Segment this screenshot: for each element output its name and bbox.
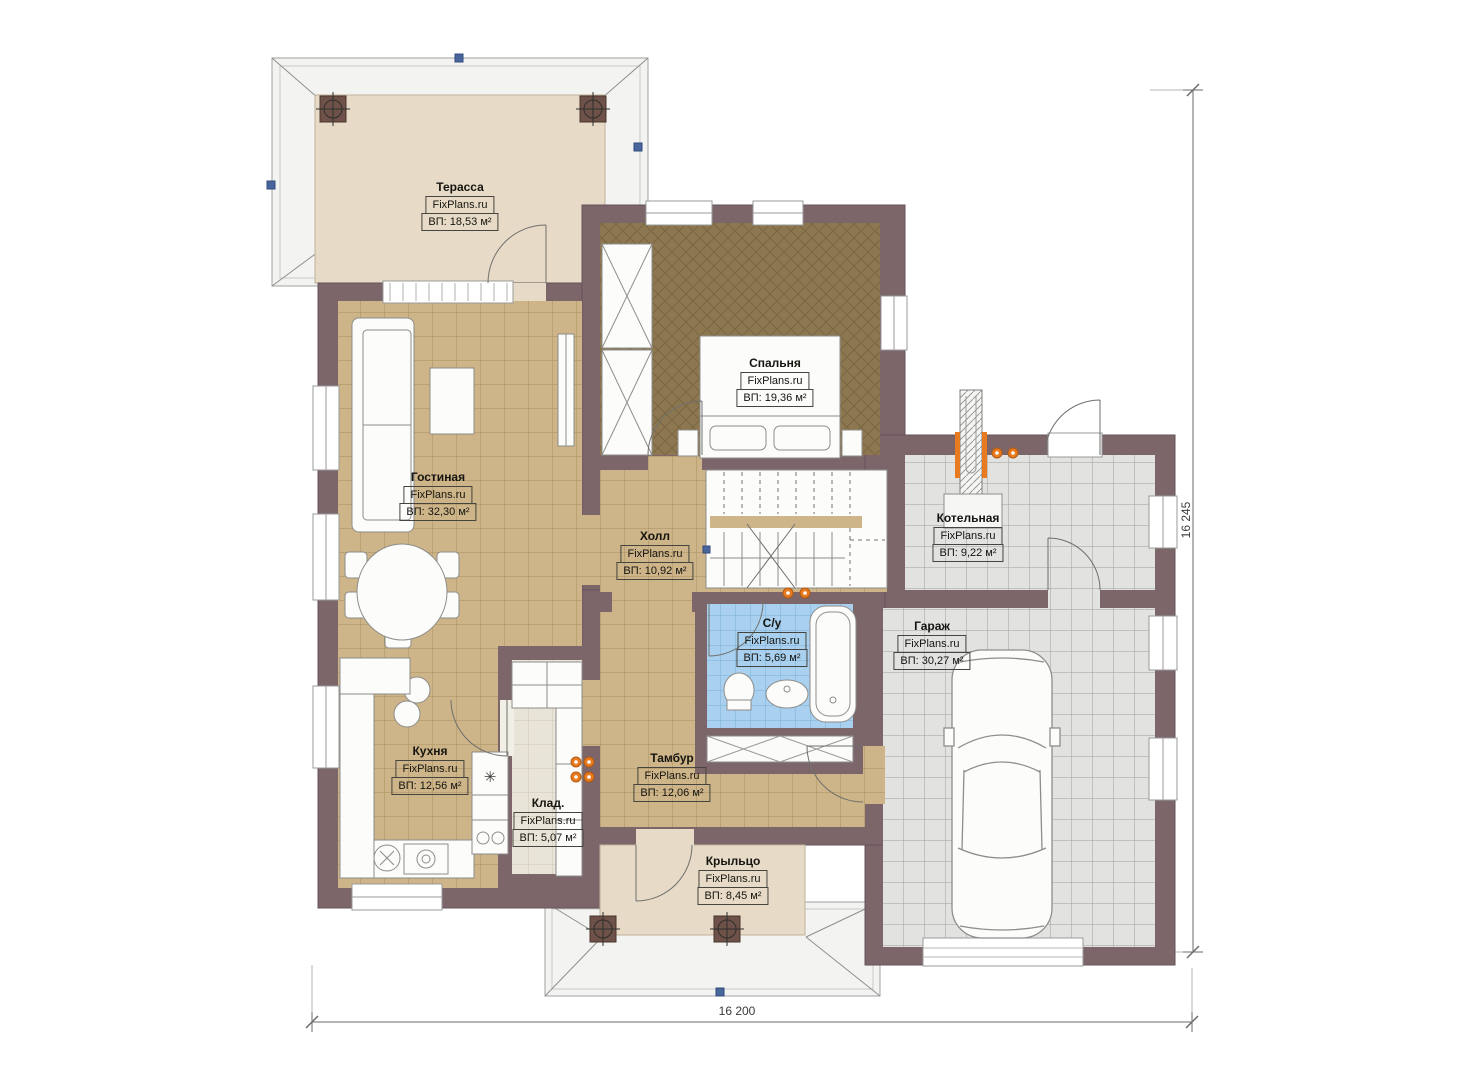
floor-plan-page: ✳ — [0, 0, 1474, 1080]
column — [710, 912, 744, 946]
coffee-table — [430, 368, 474, 434]
room-name: С/у — [763, 616, 782, 630]
room-name: Крыльцо — [706, 854, 761, 868]
window — [313, 514, 339, 600]
room-name: Клад. — [532, 796, 565, 810]
room-brand: FixPlans.ru — [698, 870, 767, 888]
window — [753, 201, 803, 225]
room-name: Гараж — [914, 619, 950, 633]
room-brand: FixPlans.ru — [740, 372, 809, 390]
room-brand: FixPlans.ru — [897, 635, 966, 653]
window — [1149, 738, 1177, 800]
wardrobe — [602, 350, 652, 455]
room-brand: FixPlans.ru — [933, 527, 1002, 545]
bathroom-closet — [707, 736, 853, 762]
wardrobe — [602, 244, 652, 348]
room-area: ВП: 10,92 м² — [616, 562, 693, 580]
room-label-kitchen: Кухня FixPlans.ru ВП: 12,56 м² — [391, 744, 468, 795]
bathroom-sink — [766, 680, 808, 708]
room-brand: FixPlans.ru — [620, 545, 689, 563]
room-area: ВП: 12,56 м² — [391, 777, 468, 795]
toilet — [724, 673, 754, 710]
room-name: Котельная — [937, 511, 1000, 525]
room-name: Кухня — [412, 744, 447, 758]
room-brand: FixPlans.ru — [637, 767, 706, 785]
fridge-icon: ✳ — [484, 768, 497, 786]
room-name: Холл — [640, 529, 670, 543]
chimney — [955, 390, 987, 494]
room-name: Спальня — [749, 356, 801, 370]
room-area: ВП: 5,69 м² — [736, 649, 807, 667]
room-name: Тамбур — [650, 751, 694, 765]
room-label-boiler: Котельная FixPlans.ru ВП: 9,22 м² — [932, 511, 1003, 562]
room-label-living: Гостиная FixPlans.ru ВП: 32,30 м² — [399, 470, 476, 521]
room-label-vestibule: Тамбур FixPlans.ru ВП: 12,06 м² — [633, 751, 710, 802]
dimension-width-label: 16 200 — [719, 1004, 756, 1018]
radiator — [558, 334, 574, 446]
column — [586, 912, 620, 946]
bathtub — [810, 606, 856, 722]
window — [881, 296, 907, 350]
room-area: ВП: 12,06 м² — [633, 784, 710, 802]
window — [313, 386, 339, 470]
room-brand: FixPlans.ru — [737, 632, 806, 650]
room-area: ВП: 9,22 м² — [932, 544, 1003, 562]
window — [313, 686, 339, 768]
column — [316, 92, 350, 126]
room-brand: FixPlans.ru — [395, 760, 464, 778]
dimension-height-label: 16 245 — [1179, 490, 1193, 550]
washing-machine — [404, 844, 448, 874]
kitchen-sink — [374, 845, 400, 871]
room-brand: FixPlans.ru — [403, 486, 472, 504]
window-terrace-strip — [383, 281, 513, 303]
window — [1149, 616, 1177, 670]
room-label-storage: Клад. FixPlans.ru ВП: 5,07 м² — [512, 796, 583, 847]
window — [352, 884, 442, 910]
room-area: ВП: 19,36 м² — [736, 389, 813, 407]
window — [646, 201, 712, 225]
room-area: ВП: 18,53 м² — [421, 213, 498, 231]
room-label-garage: Гараж FixPlans.ru ВП: 30,27 м² — [893, 619, 970, 670]
room-label-terrace: Терасса FixPlans.ru ВП: 18,53 м² — [421, 180, 498, 231]
room-label-porch: Крыльцо FixPlans.ru ВП: 8,45 м² — [697, 854, 768, 905]
window — [1149, 496, 1177, 548]
stairs — [706, 470, 887, 588]
room-label-hall: Холл FixPlans.ru ВП: 10,92 м² — [616, 529, 693, 580]
room-area: ВП: 8,45 м² — [697, 887, 768, 905]
room-area: ВП: 32,30 м² — [399, 503, 476, 521]
garage-door — [923, 938, 1083, 966]
room-name: Терасса — [436, 180, 484, 194]
room-label-bedroom: Спальня FixPlans.ru ВП: 19,36 м² — [736, 356, 813, 407]
room-name: Гостиная — [411, 470, 465, 484]
column — [576, 92, 610, 126]
room-area: ВП: 5,07 м² — [512, 829, 583, 847]
plan-drawing: ✳ — [0, 0, 1474, 1080]
car — [944, 650, 1060, 938]
room-brand: FixPlans.ru — [513, 812, 582, 830]
room-label-bathroom: С/у FixPlans.ru ВП: 5,69 м² — [736, 616, 807, 667]
room-area: ВП: 30,27 м² — [893, 652, 970, 670]
room-brand: FixPlans.ru — [425, 196, 494, 214]
